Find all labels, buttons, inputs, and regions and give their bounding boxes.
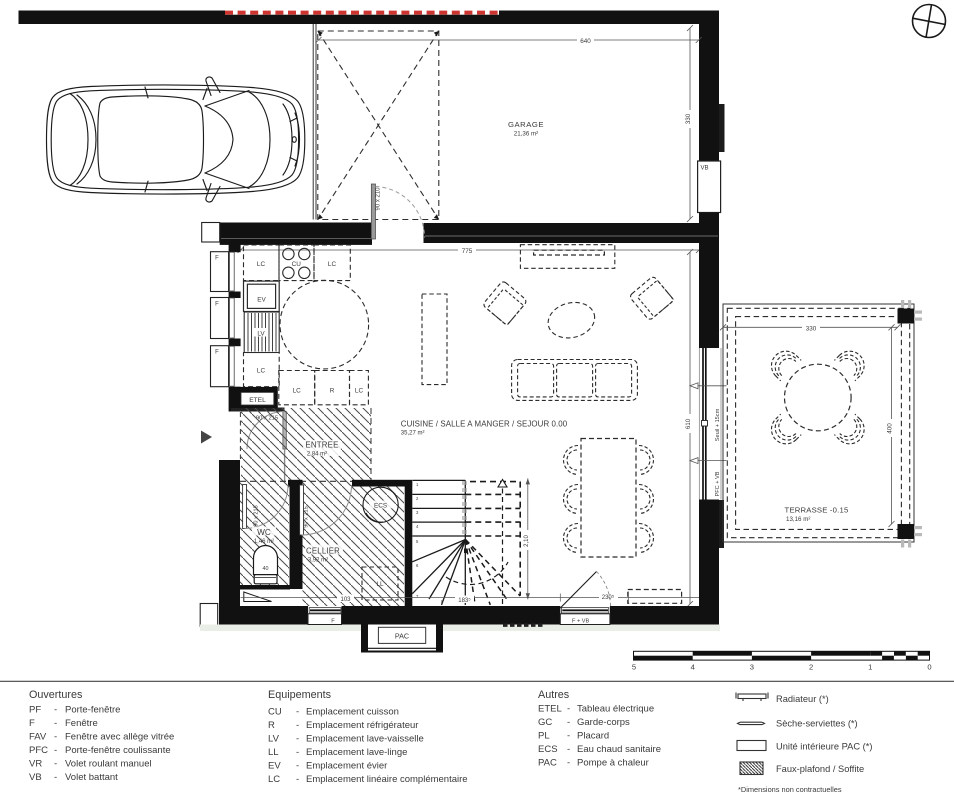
- svg-text:-: -: [296, 761, 299, 772]
- svg-text:PAC: PAC: [538, 758, 557, 769]
- svg-text:LC: LC: [268, 774, 280, 785]
- svg-text:PL: PL: [538, 731, 550, 742]
- svg-text:Porte-fenêtre coulissante: Porte-fenêtre coulissante: [65, 745, 171, 756]
- svg-text:LC: LC: [257, 368, 266, 375]
- svg-text:-: -: [54, 745, 57, 756]
- svg-text:40: 40: [263, 566, 269, 572]
- svg-text:Equipements: Equipements: [268, 689, 332, 701]
- svg-text:103: 103: [340, 597, 351, 603]
- svg-text:1,46 m²: 1,46 m²: [254, 539, 274, 545]
- svg-text:-: -: [567, 717, 570, 728]
- svg-text:F: F: [215, 302, 219, 308]
- svg-text:4: 4: [691, 663, 695, 672]
- svg-text:CU: CU: [292, 261, 302, 268]
- svg-text:330: 330: [806, 325, 817, 332]
- svg-text:Eau chaud sanitaire: Eau chaud sanitaire: [577, 744, 661, 755]
- svg-text:EV: EV: [268, 761, 281, 772]
- svg-text:PFC + VB: PFC + VB: [715, 471, 721, 496]
- svg-text:VR: VR: [29, 759, 42, 770]
- svg-text:ECS: ECS: [374, 503, 387, 510]
- svg-text:LC: LC: [293, 388, 302, 395]
- svg-text:VB: VB: [29, 772, 42, 783]
- svg-text:PFC: PFC: [29, 745, 48, 756]
- svg-text:-: -: [54, 772, 57, 783]
- svg-text:35,27 m²: 35,27 m²: [401, 431, 425, 437]
- svg-text:FAV: FAV: [29, 732, 47, 743]
- svg-text:Radiateur (*): Radiateur (*): [776, 694, 829, 704]
- svg-text:R: R: [330, 388, 335, 395]
- svg-text:640: 640: [580, 38, 591, 45]
- svg-text:GC: GC: [538, 717, 552, 728]
- svg-text:LC: LC: [257, 261, 266, 268]
- svg-text:LL: LL: [268, 747, 279, 758]
- svg-text:-: -: [296, 707, 299, 718]
- svg-text:330: 330: [685, 113, 692, 124]
- svg-text:CUISINE / SALLE A MANGER / SEJ: CUISINE / SALLE A MANGER / SEJOUR 0.00: [401, 420, 568, 429]
- svg-text:1: 1: [868, 663, 872, 672]
- svg-text:VB: VB: [701, 166, 709, 172]
- svg-text:LL: LL: [376, 581, 384, 588]
- svg-text:-: -: [54, 732, 57, 743]
- svg-text:R: R: [268, 720, 275, 731]
- svg-text:Fenêtre: Fenêtre: [65, 718, 98, 729]
- svg-text:230⁵: 230⁵: [602, 594, 615, 601]
- svg-text:LV: LV: [257, 331, 265, 338]
- svg-text:CELLIER: CELLIER: [306, 547, 340, 556]
- svg-text:F: F: [215, 256, 219, 262]
- svg-text:Garde-corps: Garde-corps: [577, 717, 630, 728]
- svg-text:ENTREE: ENTREE: [305, 441, 338, 450]
- svg-text:Seuil + 15cm: Seuil + 15cm: [715, 408, 721, 441]
- svg-text:F: F: [29, 718, 35, 729]
- svg-text:PF: PF: [29, 705, 41, 716]
- svg-text:90 x 210: 90 x 210: [376, 187, 382, 211]
- svg-text:-: -: [567, 704, 570, 715]
- svg-text:610: 610: [685, 418, 692, 429]
- svg-text:LC: LC: [355, 388, 364, 395]
- svg-text:Emplacement linéaire complémen: Emplacement linéaire complémentaire: [306, 774, 468, 785]
- svg-text:Ouvertures: Ouvertures: [29, 689, 83, 701]
- svg-text:2: 2: [809, 663, 813, 672]
- svg-text:Emplacement cuisson: Emplacement cuisson: [306, 707, 399, 718]
- svg-text:Faux-plafond / Soffite: Faux-plafond / Soffite: [776, 764, 864, 774]
- svg-text:-: -: [54, 759, 57, 770]
- svg-text:F: F: [331, 619, 335, 625]
- svg-text:2,84 m²: 2,84 m²: [307, 452, 327, 458]
- svg-text:13,16 m²: 13,16 m²: [786, 516, 810, 523]
- svg-text:ETEL: ETEL: [249, 397, 266, 404]
- svg-text:3,92 m²: 3,92 m²: [308, 558, 328, 564]
- svg-text:WC: WC: [257, 528, 271, 537]
- svg-text:ETEL: ETEL: [538, 704, 562, 715]
- svg-text:Emplacement évier: Emplacement évier: [306, 761, 387, 772]
- svg-text:PAC: PAC: [395, 632, 409, 641]
- svg-text:F + VB: F + VB: [572, 619, 590, 625]
- svg-text:Volet battant: Volet battant: [65, 772, 118, 783]
- svg-text:Emplacement réfrigérateur: Emplacement réfrigérateur: [306, 720, 418, 731]
- svg-text:Pompe à chaleur: Pompe à chaleur: [577, 758, 649, 769]
- svg-text:Autres: Autres: [538, 689, 570, 701]
- svg-text:CU: CU: [268, 707, 282, 718]
- svg-text:ECS: ECS: [538, 744, 558, 755]
- svg-text:3: 3: [750, 663, 754, 672]
- svg-text:-: -: [296, 720, 299, 731]
- svg-text:183⁵: 183⁵: [458, 597, 471, 604]
- svg-text:-: -: [567, 731, 570, 742]
- svg-text:-: -: [296, 747, 299, 758]
- svg-text:-: -: [567, 758, 570, 769]
- svg-text:Porte-fenêtre: Porte-fenêtre: [65, 705, 120, 716]
- svg-text:-: -: [54, 718, 57, 729]
- svg-text:90 x 215: 90 x 215: [254, 505, 260, 526]
- svg-text:Volet roulant manuel: Volet roulant manuel: [65, 759, 152, 770]
- svg-text:TERRASSE -0.15: TERRASSE -0.15: [785, 506, 849, 515]
- svg-text:Emplacement lave-linge: Emplacement lave-linge: [306, 747, 407, 758]
- svg-text:400: 400: [887, 423, 894, 434]
- svg-text:-: -: [296, 734, 299, 745]
- svg-text:0: 0: [927, 663, 931, 672]
- svg-text:*Dimensions non contractuelles: *Dimensions non contractuelles: [738, 785, 842, 794]
- svg-text:21,36 m²: 21,36 m²: [514, 131, 538, 138]
- svg-text:2,10: 2,10: [524, 535, 530, 547]
- svg-text:LC: LC: [328, 261, 337, 268]
- svg-text:EV: EV: [257, 296, 266, 303]
- svg-text:-: -: [54, 705, 57, 716]
- svg-text:Unité intérieure PAC (*): Unité intérieure PAC (*): [776, 742, 872, 752]
- svg-text:-: -: [296, 774, 299, 785]
- svg-text:GARAGE: GARAGE: [508, 120, 544, 129]
- svg-text:Placard: Placard: [577, 731, 609, 742]
- svg-text:Sèche-serviettes (*): Sèche-serviettes (*): [776, 719, 858, 729]
- svg-text:LV: LV: [268, 734, 280, 745]
- svg-text:5: 5: [632, 663, 636, 672]
- svg-text:90 x 215: 90 x 215: [304, 506, 310, 527]
- svg-text:Fenêtre avec allège vitrée: Fenêtre avec allège vitrée: [65, 732, 174, 743]
- svg-text:775: 775: [462, 248, 473, 255]
- svg-text:-: -: [567, 744, 570, 755]
- svg-text:F: F: [215, 350, 219, 356]
- svg-text:Tableau électrique: Tableau électrique: [577, 704, 654, 715]
- svg-text:Emplacement lave-vaisselle: Emplacement lave-vaisselle: [306, 734, 424, 745]
